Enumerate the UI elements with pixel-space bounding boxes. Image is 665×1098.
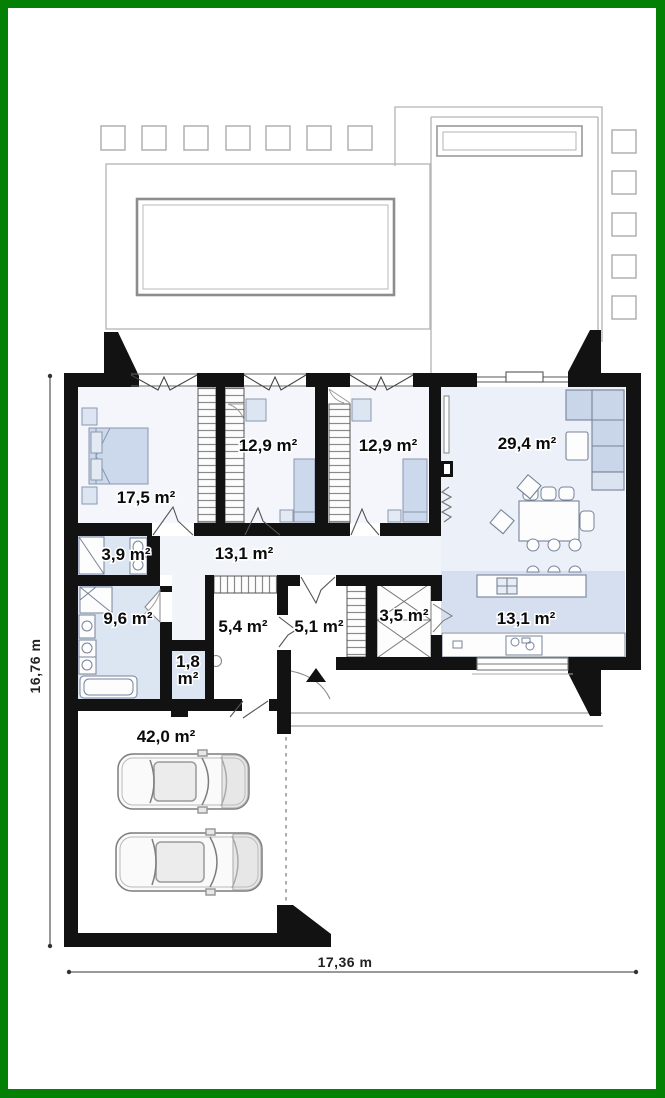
svg-text:13,1 m²: 13,1 m²: [497, 609, 556, 628]
svg-text:9,6 m²: 9,6 m²: [103, 609, 152, 628]
svg-text:m²: m²: [178, 669, 199, 688]
svg-text:3,9 m²: 3,9 m²: [101, 545, 150, 564]
svg-text:3,5 m²: 3,5 m²: [379, 606, 428, 625]
svg-text:5,1 m²: 5,1 m²: [294, 617, 343, 636]
svg-text:16,76 m: 16,76 m: [27, 639, 43, 694]
svg-text:12,9 m²: 12,9 m²: [359, 436, 418, 455]
svg-text:12,9 m²: 12,9 m²: [239, 436, 298, 455]
svg-text:17,5 m²: 17,5 m²: [117, 488, 176, 507]
svg-text:5,4 m²: 5,4 m²: [218, 617, 267, 636]
svg-text:13,1 m²: 13,1 m²: [215, 544, 274, 563]
svg-text:29,4 m²: 29,4 m²: [498, 434, 557, 453]
svg-text:17,36 m: 17,36 m: [318, 954, 373, 970]
svg-text:42,0 m²: 42,0 m²: [137, 727, 196, 746]
